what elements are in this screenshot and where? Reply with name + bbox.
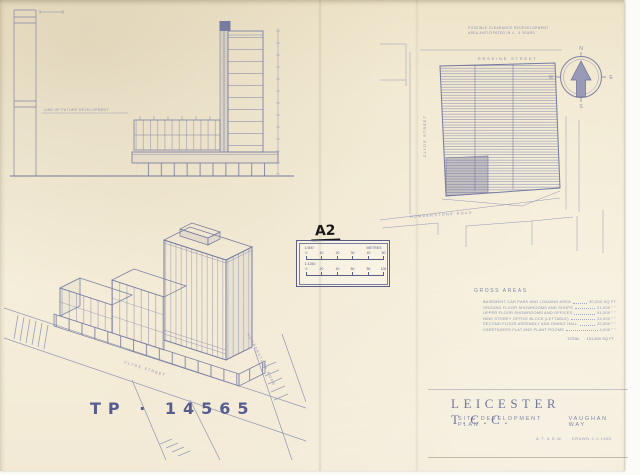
drawing-sheet: LINE OF FUTURE DEVELOPMENT POSSIBLE CLEA… [0,0,624,471]
compass-s: S [579,104,583,110]
street-label-erskine: ERSKINE STREET [478,56,538,61]
site-note-line1: POSSIBLE CLEARANCE REDEVELOPMENT [468,26,549,30]
tower-block [220,21,264,152]
tick-label: 20 [336,251,340,255]
title-block-rule-top [428,389,628,390]
scale-bar-11250: 0 20 40 60 80 100 [306,267,384,276]
gross-areas-total: TOTAL151,500 SQ FT [468,336,616,341]
title-block-rule-bottom [428,457,628,458]
credit-date: DRAWN 2.1.1960 [572,436,612,441]
tp-number: TP · 14565 [90,399,256,418]
credit-initials: A.T. & E.W. [536,436,563,441]
scale-box-inner-border: 1:500 METRES 0 10 20 30 40 50 1:1250 0 2… [299,243,388,285]
gross-areas-heading: GROSS AREAS [474,288,616,294]
tick-label: 80 [367,267,371,271]
compass-w: W [549,75,554,81]
axon-street-label-clyde: CLYDE STREET [124,360,167,377]
penthouse [180,223,220,245]
elevation-drawing: LINE OF FUTURE DEVELOPMENT [6,2,298,207]
drawing-credit: A.T. & E.W. DRAWN 2.1.1960 [536,436,612,441]
compass-e: E [609,75,613,81]
adjacent-building-outline [14,10,63,176]
tower-front-face [164,240,226,360]
tick-label: 60 [351,267,355,271]
street-label-clyde: CLYDE STREET [423,115,427,158]
podium-block [134,116,220,150]
gross-areas-table: GROSS AREAS BASEMENT CAR PARK AND LOADIN… [468,288,616,341]
north-arrow [571,61,591,97]
drawing-subtitle: SITE DEVELOPMENT PLAN VAUGHAN WAY [458,416,624,428]
tick-label: 40 [367,251,371,255]
subtitle-suffix: VAUGHAN WAY [569,416,624,428]
scale-box: 1:500 METRES 0 10 20 30 40 50 1:1250 0 2… [296,240,390,287]
building-footprint [440,63,560,206]
tick-label: 0 [306,251,308,255]
lift-overrun-cap [220,21,231,31]
street-label-humberstone: HUMBERSTONE ROAD [410,211,473,219]
compass-north-icon: N S W E [549,46,614,110]
site-note-line2: AREA ANTICIPATED IN 4 - 5 YEARS [468,31,535,35]
handwritten-sheet-ref: A2 [311,224,340,242]
tick-label: 100 [381,267,387,271]
tick-label: 30 [351,251,355,255]
tick-label: 50 [382,251,386,255]
axon-building [54,223,265,386]
tick-label: 10 [320,251,324,255]
base-slab-and-pilotis [132,152,278,176]
scale-bar-1500: 0 10 20 30 40 50 [306,251,384,260]
axonometric-drawing: CLYDE STREET HUMBERSTONE ROAD [4,222,306,460]
table-row: CARETAKERS FLAT AND PLANT ROOMS4,500 " " [483,327,616,333]
subtitle-text: SITE DEVELOPMENT PLAN [458,416,559,428]
tick-label: 20 [320,267,324,271]
elevation-note: LINE OF FUTURE DEVELOPMENT [44,108,109,112]
compass-n: N [579,46,583,52]
tick-label: 40 [336,267,340,271]
tick-label: 0 [306,267,308,271]
site-plan-drawing: POSSIBLE CLEARANCE REDEVELOPMENT AREA AN… [380,16,632,268]
